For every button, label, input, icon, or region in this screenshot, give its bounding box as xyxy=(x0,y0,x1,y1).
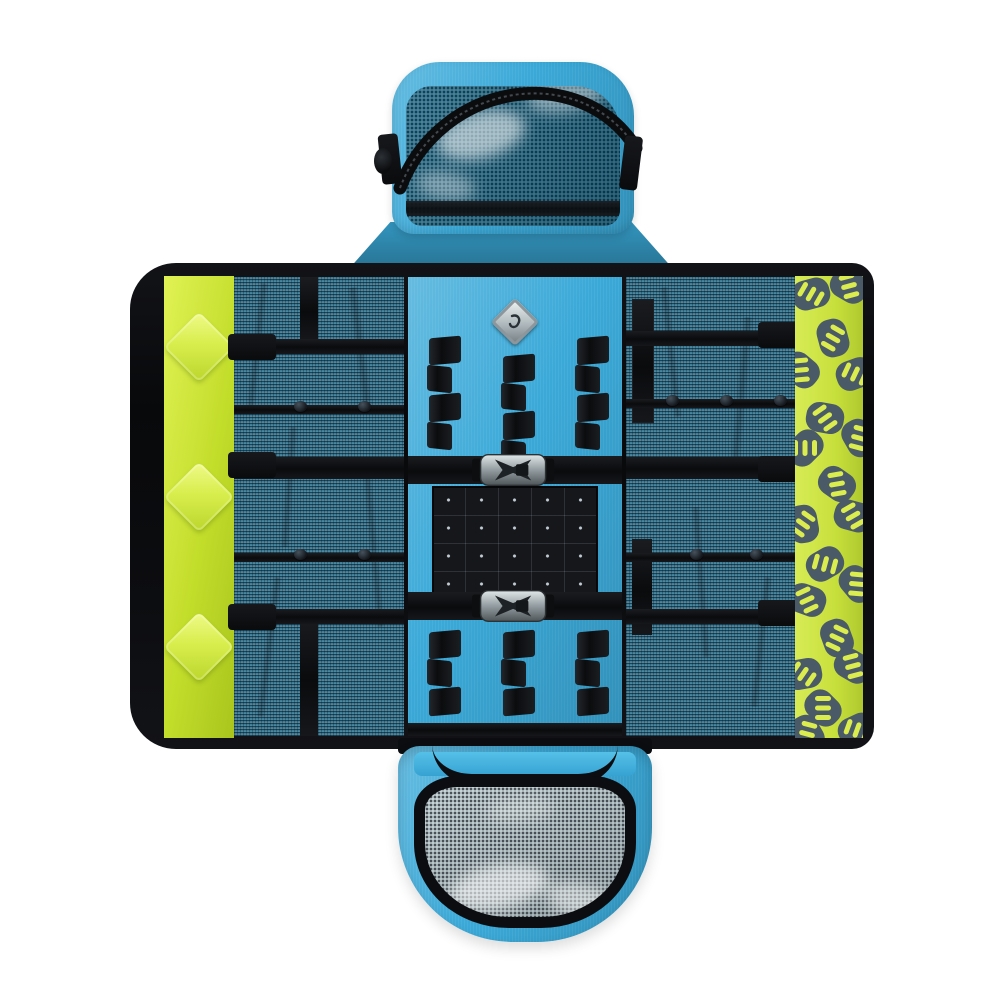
elastic-loop xyxy=(575,365,600,394)
snap-button xyxy=(750,549,763,560)
snap-button xyxy=(666,395,679,406)
snap-button xyxy=(774,395,787,406)
bottom-pouch-mesh-window xyxy=(414,776,636,928)
side-release-buckle xyxy=(472,450,558,490)
elastic-row xyxy=(626,399,795,408)
snap-button xyxy=(294,401,307,412)
elastic-loop xyxy=(577,393,609,423)
elastic-loop xyxy=(577,630,609,660)
elastic-loop-column xyxy=(574,631,606,715)
elastic-loop-column xyxy=(426,337,458,449)
elastic-loop-column xyxy=(500,631,532,715)
elastic-loop xyxy=(577,336,609,366)
elastic-loop xyxy=(503,630,535,660)
vinyl-glint xyxy=(484,793,556,826)
divider-strap-vertical xyxy=(300,613,318,736)
reflective-diamond xyxy=(164,612,235,683)
snap-button xyxy=(690,549,703,560)
elastic-row xyxy=(626,553,795,562)
elastic-row xyxy=(234,405,404,414)
elastic-loop xyxy=(577,687,609,717)
elastic-loop xyxy=(427,422,452,451)
elastic-loop-column xyxy=(426,631,458,715)
snap-button xyxy=(720,395,733,406)
top-pouch-left-clip xyxy=(374,148,392,174)
top-pouch-zipper xyxy=(384,52,646,204)
side-release-buckle xyxy=(472,586,558,626)
elastic-loop xyxy=(427,659,452,688)
vinyl-glint xyxy=(446,857,552,918)
divider-strap-vertical xyxy=(300,277,318,341)
product-photo-canvas xyxy=(0,0,1000,1000)
elastic-loop xyxy=(501,659,526,688)
elastic-loop xyxy=(429,687,461,717)
brand-diamond-logo-patch xyxy=(491,298,539,346)
edge-tab xyxy=(228,452,276,478)
bottom-trim xyxy=(408,723,622,736)
carabiner-icon xyxy=(506,313,524,331)
elastic-row xyxy=(234,553,404,562)
snap-button xyxy=(358,549,371,560)
molle-grid-panel xyxy=(432,486,598,600)
elastic-loop xyxy=(429,393,461,423)
hi-vis-left-strip xyxy=(164,276,234,738)
edge-tab xyxy=(228,604,276,630)
center-organizer-panel xyxy=(408,277,622,736)
elastic-loop xyxy=(429,336,461,366)
brand-pattern-panel xyxy=(795,276,863,738)
snap-button xyxy=(294,549,307,560)
elastic-loop xyxy=(503,411,535,441)
elastic-loop xyxy=(575,659,600,688)
snap-button xyxy=(358,401,371,412)
elastic-loop xyxy=(575,422,600,451)
elastic-loop-column xyxy=(574,337,606,449)
elastic-loop xyxy=(503,354,535,384)
edge-tab xyxy=(228,334,276,360)
elastic-loop xyxy=(429,630,461,660)
reflective-diamond xyxy=(164,462,235,533)
reflective-diamond xyxy=(164,312,235,383)
elastic-loop xyxy=(503,687,535,717)
elastic-loop xyxy=(427,365,452,394)
elastic-loop xyxy=(501,383,526,412)
